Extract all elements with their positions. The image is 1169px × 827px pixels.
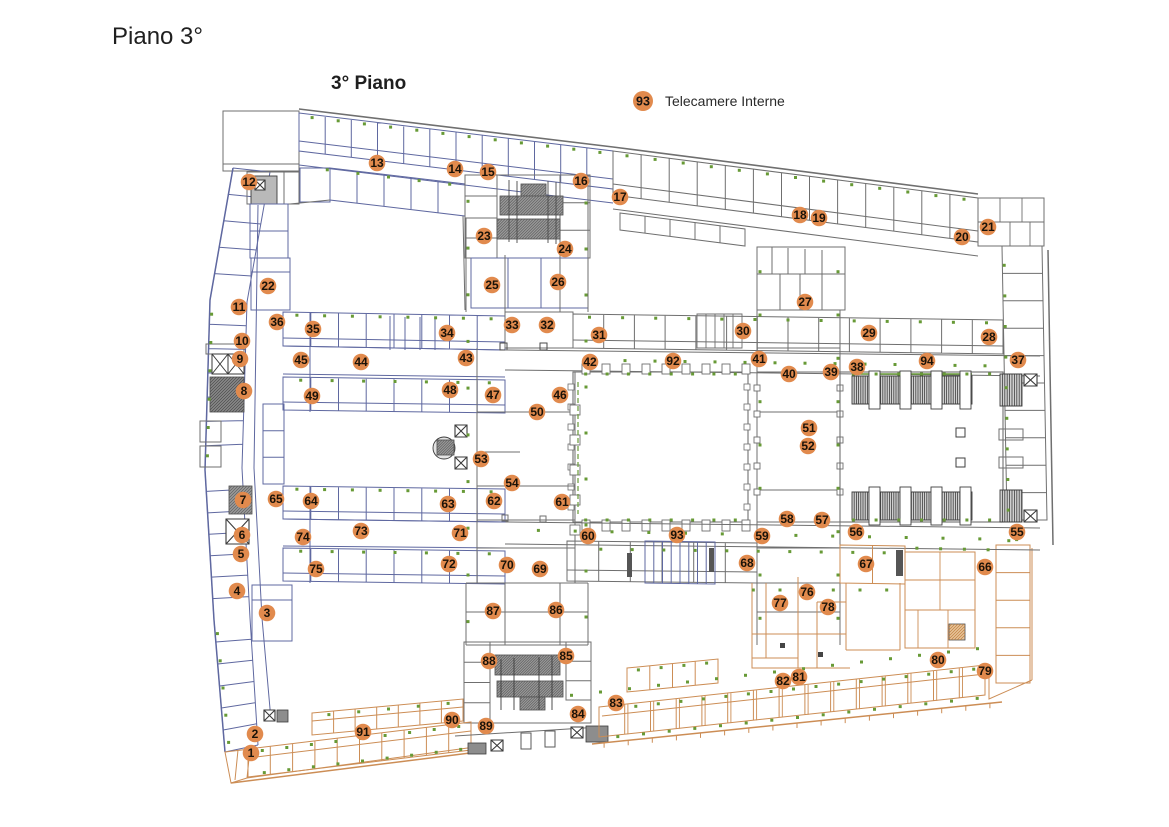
svg-text:76: 76 bbox=[800, 585, 814, 599]
svg-text:33: 33 bbox=[505, 318, 519, 332]
svg-text:28: 28 bbox=[982, 330, 996, 344]
svg-text:27: 27 bbox=[798, 295, 812, 309]
svg-text:74: 74 bbox=[296, 530, 310, 544]
svg-text:78: 78 bbox=[821, 600, 835, 614]
svg-text:30: 30 bbox=[736, 324, 750, 338]
svg-text:26: 26 bbox=[551, 275, 565, 289]
svg-text:1: 1 bbox=[248, 746, 255, 760]
svg-text:69: 69 bbox=[533, 562, 547, 576]
svg-text:92: 92 bbox=[666, 354, 680, 368]
svg-text:73: 73 bbox=[354, 524, 368, 538]
svg-text:63: 63 bbox=[441, 497, 455, 511]
svg-text:48: 48 bbox=[443, 383, 457, 397]
svg-text:93: 93 bbox=[636, 95, 650, 109]
svg-text:90: 90 bbox=[445, 713, 459, 727]
svg-text:45: 45 bbox=[294, 353, 308, 367]
svg-text:94: 94 bbox=[920, 354, 934, 368]
svg-text:3° Piano: 3° Piano bbox=[331, 73, 406, 94]
svg-text:22: 22 bbox=[261, 279, 275, 293]
svg-text:61: 61 bbox=[555, 495, 569, 509]
svg-text:11: 11 bbox=[233, 300, 246, 314]
svg-text:60: 60 bbox=[581, 529, 595, 543]
svg-text:82: 82 bbox=[776, 674, 790, 688]
svg-text:75: 75 bbox=[309, 562, 323, 576]
svg-text:66: 66 bbox=[978, 560, 992, 574]
svg-text:20: 20 bbox=[955, 230, 969, 244]
svg-text:10: 10 bbox=[235, 334, 249, 348]
svg-text:39: 39 bbox=[824, 365, 838, 379]
svg-text:31: 31 bbox=[592, 328, 606, 342]
svg-text:35: 35 bbox=[306, 322, 320, 336]
svg-text:25: 25 bbox=[485, 278, 499, 292]
svg-text:56: 56 bbox=[849, 525, 863, 539]
svg-text:15: 15 bbox=[481, 165, 495, 179]
svg-text:23: 23 bbox=[477, 229, 491, 243]
svg-text:71: 71 bbox=[453, 526, 467, 540]
svg-text:2: 2 bbox=[252, 727, 259, 741]
svg-text:87: 87 bbox=[486, 604, 500, 618]
svg-text:7: 7 bbox=[240, 493, 247, 507]
svg-text:32: 32 bbox=[540, 318, 554, 332]
svg-text:93: 93 bbox=[670, 528, 684, 542]
svg-text:24: 24 bbox=[558, 242, 572, 256]
svg-text:84: 84 bbox=[571, 707, 585, 721]
svg-text:49: 49 bbox=[305, 389, 319, 403]
svg-text:37: 37 bbox=[1011, 353, 1025, 367]
svg-text:14: 14 bbox=[448, 162, 462, 176]
svg-text:65: 65 bbox=[269, 492, 283, 506]
svg-text:9: 9 bbox=[237, 352, 244, 366]
svg-text:34: 34 bbox=[440, 326, 454, 340]
svg-text:44: 44 bbox=[354, 355, 368, 369]
svg-text:40: 40 bbox=[782, 367, 796, 381]
svg-text:21: 21 bbox=[981, 220, 995, 234]
svg-text:43: 43 bbox=[459, 351, 473, 365]
svg-text:83: 83 bbox=[609, 696, 623, 710]
svg-text:51: 51 bbox=[802, 421, 816, 435]
svg-text:72: 72 bbox=[442, 557, 456, 571]
svg-text:29: 29 bbox=[862, 326, 876, 340]
svg-text:42: 42 bbox=[583, 355, 597, 369]
svg-text:Telecamere Interne: Telecamere Interne bbox=[665, 93, 785, 109]
svg-text:Piano 3°: Piano 3° bbox=[112, 23, 203, 50]
svg-text:88: 88 bbox=[482, 654, 496, 668]
svg-text:12: 12 bbox=[242, 175, 256, 189]
svg-text:46: 46 bbox=[553, 388, 567, 402]
svg-text:13: 13 bbox=[370, 156, 384, 170]
svg-text:85: 85 bbox=[559, 649, 573, 663]
svg-text:64: 64 bbox=[304, 494, 318, 508]
svg-text:55: 55 bbox=[1010, 525, 1024, 539]
svg-text:3: 3 bbox=[264, 606, 271, 620]
svg-text:36: 36 bbox=[270, 315, 284, 329]
svg-text:16: 16 bbox=[574, 174, 588, 188]
svg-text:19: 19 bbox=[812, 211, 826, 225]
svg-text:58: 58 bbox=[780, 512, 794, 526]
svg-text:5: 5 bbox=[238, 547, 245, 561]
svg-text:54: 54 bbox=[505, 476, 519, 490]
svg-text:59: 59 bbox=[755, 529, 769, 543]
svg-text:68: 68 bbox=[740, 556, 754, 570]
svg-text:6: 6 bbox=[239, 528, 246, 542]
svg-text:52: 52 bbox=[801, 439, 815, 453]
svg-text:77: 77 bbox=[773, 596, 787, 610]
svg-text:4: 4 bbox=[234, 584, 241, 598]
svg-text:89: 89 bbox=[479, 719, 493, 733]
svg-text:91: 91 bbox=[356, 725, 370, 739]
svg-text:79: 79 bbox=[978, 664, 992, 678]
svg-text:67: 67 bbox=[859, 557, 873, 571]
svg-text:80: 80 bbox=[931, 653, 945, 667]
svg-text:8: 8 bbox=[241, 384, 248, 398]
svg-text:17: 17 bbox=[613, 190, 627, 204]
svg-text:50: 50 bbox=[530, 405, 544, 419]
svg-text:81: 81 bbox=[792, 670, 806, 684]
svg-text:38: 38 bbox=[850, 360, 864, 374]
svg-text:53: 53 bbox=[474, 452, 488, 466]
svg-text:41: 41 bbox=[752, 352, 766, 366]
svg-text:86: 86 bbox=[549, 603, 563, 617]
svg-text:70: 70 bbox=[500, 558, 514, 572]
svg-text:57: 57 bbox=[815, 513, 829, 527]
svg-text:18: 18 bbox=[793, 208, 807, 222]
svg-text:62: 62 bbox=[487, 494, 501, 508]
svg-text:47: 47 bbox=[486, 388, 500, 402]
